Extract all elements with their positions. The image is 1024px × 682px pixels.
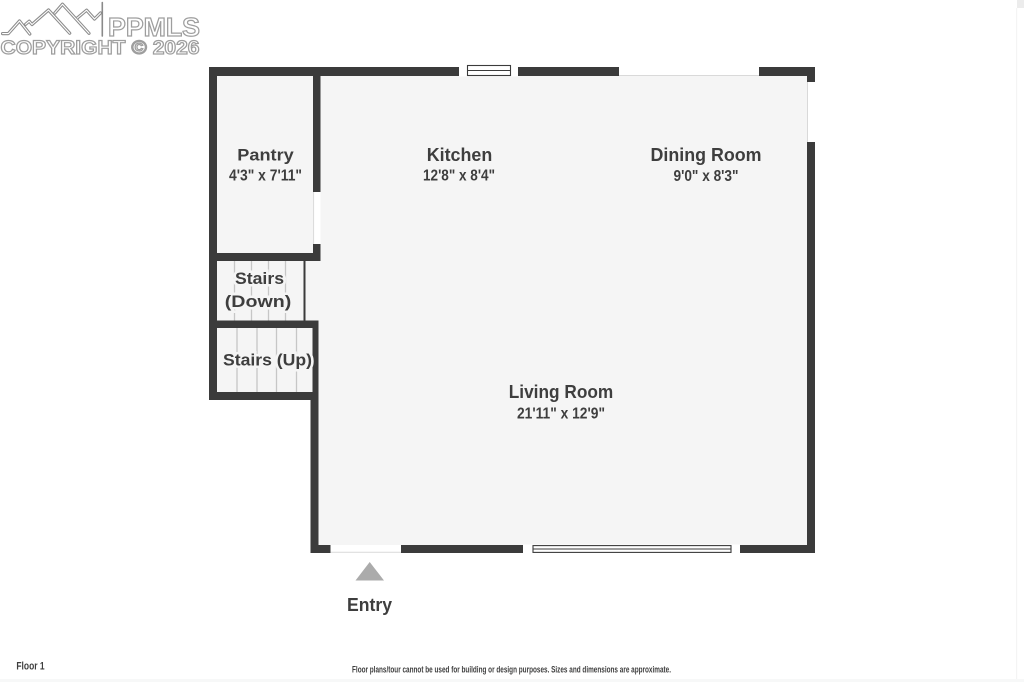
svg-text:21'11" x 12'9": 21'11" x 12'9" xyxy=(517,405,605,422)
svg-text:9'0" x 8'3": 9'0" x 8'3" xyxy=(674,168,739,185)
svg-text:Stairs (Up): Stairs (Up) xyxy=(223,351,312,370)
svg-text:Floor 1: Floor 1 xyxy=(16,660,44,672)
svg-text:12'8" x 8'4": 12'8" x 8'4" xyxy=(423,168,495,185)
svg-text:Stairs: Stairs xyxy=(235,269,284,288)
svg-text:Floor plans/tour cannot be use: Floor plans/tour cannot be used for buil… xyxy=(352,664,671,674)
svg-text:(Down): (Down) xyxy=(225,292,292,311)
svg-text:4'3" x 7'11": 4'3" x 7'11" xyxy=(229,168,302,185)
svg-text:Dining Room: Dining Room xyxy=(651,144,762,165)
svg-text:Pantry: Pantry xyxy=(237,146,294,165)
svg-text:Living Room: Living Room xyxy=(509,381,614,402)
svg-text:Kitchen: Kitchen xyxy=(427,144,493,165)
svg-text:Entry: Entry xyxy=(347,594,393,615)
svg-text:COPYRIGHT © 2026: COPYRIGHT © 2026 xyxy=(1,37,200,59)
